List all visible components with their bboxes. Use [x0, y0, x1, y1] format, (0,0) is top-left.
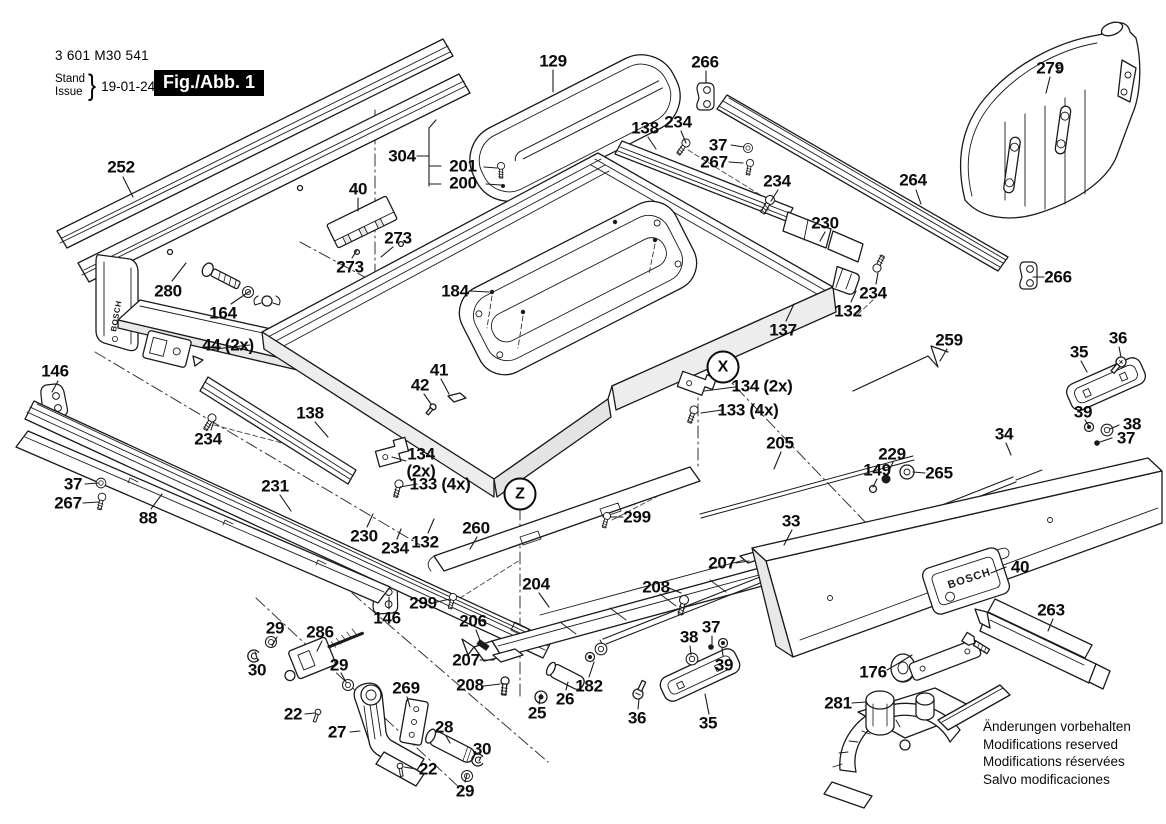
modification-note-line: Modifications réservées: [983, 753, 1131, 771]
modification-note-line: Salvo modificaciones: [983, 771, 1131, 789]
figure-label: Fig./Abb. 1: [154, 70, 264, 96]
title-block: 3 601 M30 541 Stand Issue } 19-01-24: [55, 48, 155, 103]
issue-label: Issue: [55, 86, 85, 99]
parts-diagram-page: BOSCH: [0, 0, 1166, 824]
modification-notes: Änderungen vorbehaltenModifications rese…: [983, 718, 1131, 788]
stand-label: Stand: [55, 73, 85, 86]
part-number: 3 601 M30 541: [55, 48, 155, 63]
brace-glyph: }: [88, 69, 96, 103]
modification-note-line: Modifications reserved: [983, 736, 1131, 754]
issue-block: Stand Issue } 19-01-24: [55, 69, 155, 103]
issue-date: 19-01-24: [101, 79, 155, 94]
exploded-drawing: BOSCH: [0, 0, 1166, 824]
modification-note-line: Änderungen vorbehalten: [983, 718, 1131, 736]
